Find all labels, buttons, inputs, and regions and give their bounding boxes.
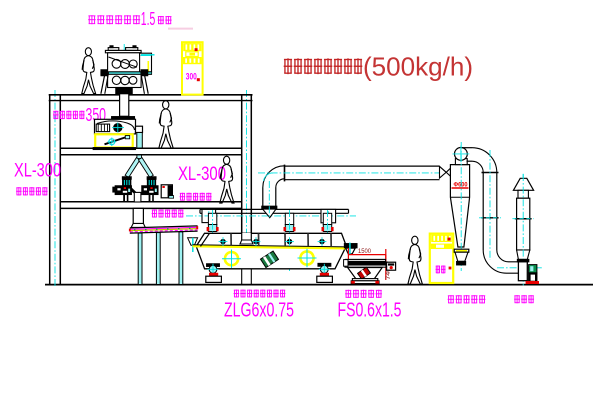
svg-text:1500: 1500 <box>358 249 372 255</box>
svg-text:ZLG6x0.75: ZLG6x0.75 <box>224 299 294 322</box>
svg-text:XL-300: XL-300 <box>14 160 61 181</box>
svg-text:300: 300 <box>186 72 197 83</box>
svg-text:(500kg/h): (500kg/h) <box>363 52 473 82</box>
svg-text:FS0.6x1.5: FS0.6x1.5 <box>338 299 402 322</box>
svg-text:XL-300: XL-300 <box>178 164 226 185</box>
svg-text:1.5: 1.5 <box>141 9 156 29</box>
